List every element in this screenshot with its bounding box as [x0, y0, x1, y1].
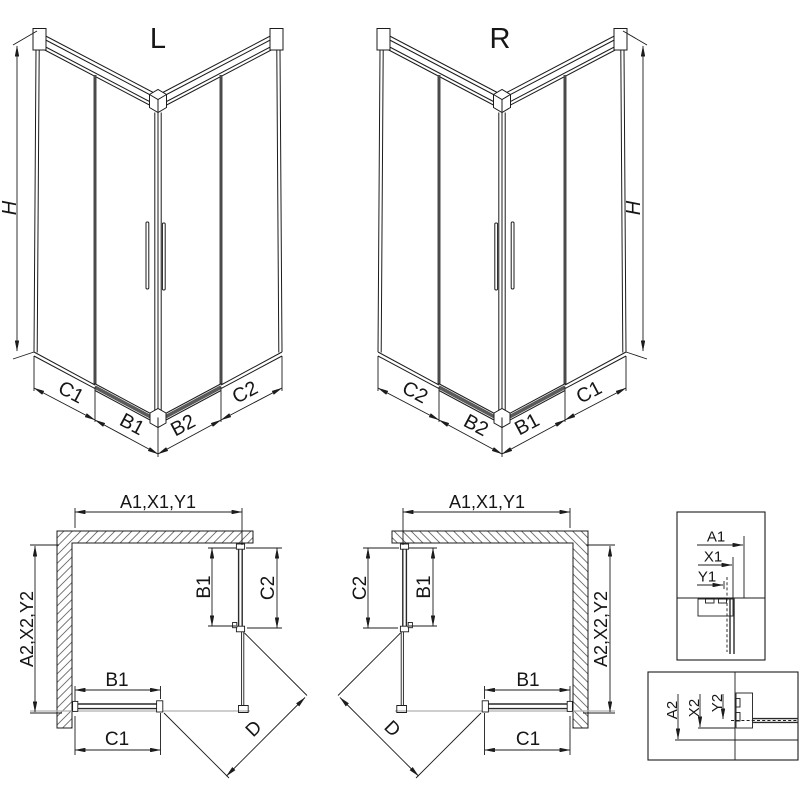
plan-right-panel-c2-label: C2 — [350, 576, 371, 600]
plan-left-width-label: A1,X1,Y1 — [120, 492, 196, 512]
detail-x1-label: X1 — [704, 549, 722, 566]
technical-drawing-page: L H C1 B1 B2 C2 R H C2 B2 B1 C1 A1,X1,Y1… — [0, 0, 800, 800]
dim-label-h-left: H — [0, 200, 21, 215]
plan-right-rail-b1-label: B1 — [516, 670, 539, 691]
variant-title-right: R — [490, 23, 511, 55]
plan-left-panel-c2-label: C2 — [258, 576, 279, 600]
plan-right-rail-c1-label: C1 — [516, 729, 540, 750]
variant-title-left: L — [150, 23, 166, 55]
detail-y1-label: Y1 — [698, 569, 716, 586]
detail-a2-label: A2 — [664, 701, 681, 719]
plan-right-depth-label: A2,X2,Y2 — [591, 591, 611, 667]
plan-right-door-b1-label: B1 — [414, 575, 435, 598]
plan-left-rail-b1-label: B1 — [105, 670, 128, 691]
plan-left-door-b1-label: B1 — [194, 575, 215, 598]
dim-label-h-right: H — [623, 200, 645, 215]
detail-x2-label: X2 — [686, 699, 703, 717]
plan-right-width-label: A1,X1,Y1 — [449, 492, 525, 512]
detail-a1-label: A1 — [707, 529, 725, 546]
plan-left-rail-c1-label: C1 — [105, 729, 129, 750]
plan-left-depth-label: A2,X2,Y2 — [17, 591, 37, 667]
detail-y2-label: Y2 — [709, 694, 726, 712]
shower-enclosure-diagram: L H C1 B1 B2 C2 R H C2 B2 B1 C1 A1,X1,Y1… — [0, 0, 800, 800]
